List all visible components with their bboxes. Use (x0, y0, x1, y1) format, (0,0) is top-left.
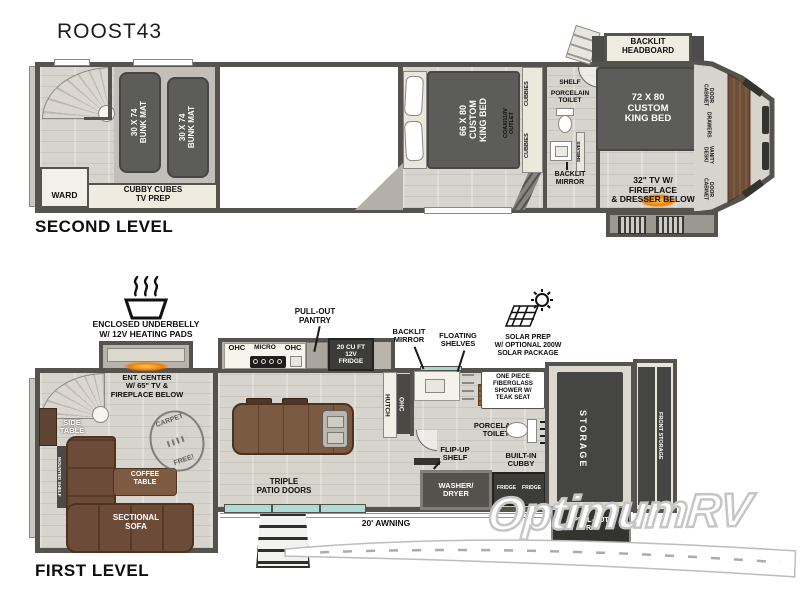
front-storage-label: FRONT STORAGE (657, 372, 671, 500)
leader-line (414, 347, 424, 370)
stair-wall-stub (84, 117, 110, 120)
coax-outlet-label: COAX/110V OUTLET (503, 85, 520, 161)
washer-dryer-label: WASHER/ DRYER (438, 482, 473, 499)
fridge-label: 20 CU FT 12V FRIDGE (337, 344, 365, 366)
ent-center-label: ENT. CENTER W/ 65" TV & FIREPLACE BELOW (98, 374, 196, 399)
front-king-bed: 72 X 80 CUSTOM KING BED (596, 67, 700, 151)
wardrobe-label: WARD (42, 191, 87, 201)
watermark: OptimumRV (486, 482, 753, 542)
bath-vanity (414, 371, 460, 401)
hatch-icon (656, 216, 684, 234)
toilet-bowl-icon (506, 422, 528, 438)
ohc-vertical-label: OHC (397, 376, 410, 432)
cubbies-bottom-label: CUBBIES (524, 122, 540, 170)
backlit-mirror-label-1st: BACKLIT MIRROR (386, 328, 432, 345)
stair-post-icon (92, 406, 109, 423)
bunk-mat-2: 30 X 74 BUNK MAT (167, 77, 209, 178)
bunk-mat-1-label: 30 X 74 BUNK MAT (131, 101, 149, 143)
shelves-label: SHELVES (576, 133, 585, 171)
kitchen-sink-icon (290, 356, 302, 367)
washer-dryer: WASHER/ DRYER (420, 470, 492, 510)
floorplan-page: ROOST43 WARD CUBBY CUBES TV PREP 30 X 74… (0, 0, 800, 600)
window (424, 207, 512, 214)
toilet-bowl-icon (558, 115, 572, 133)
desk-vanity-label: DESK/ VANITY (702, 140, 718, 170)
window (133, 59, 193, 66)
toilet-tank-icon (527, 419, 537, 443)
pillow (404, 76, 424, 117)
front-king-bed-label: 72 X 80 CUSTOM KING BED (625, 93, 671, 125)
cubby-cubes-label: CUBBY CUBES TV PREP (92, 186, 214, 204)
window (54, 59, 90, 66)
sectional-sofa-label: SECTIONAL SOFA (92, 514, 180, 532)
cubbies-top-label: CUBBIES (524, 70, 540, 118)
ohc-right-label: OHC (285, 344, 302, 352)
solar-icon (500, 288, 556, 332)
ohc-left-label: OHC (228, 344, 245, 352)
built-in-cubby-label: BUILT-IN CUBBY (494, 452, 548, 469)
drawers-label: DRAWERS (705, 112, 715, 138)
carpet-free-bottom: FREE! (173, 454, 195, 469)
patio-doors-label: TRIPLE PATIO DOORS (246, 478, 322, 496)
second-level-plan: WARD CUBBY CUBES TV PREP 30 X 74 BUNK MA… (0, 0, 800, 250)
heat-icon (124, 276, 168, 320)
hutch-label: HUTCH (383, 374, 397, 436)
pantry-label: PULL-OUT PANTRY (283, 308, 347, 326)
leader-line (566, 162, 568, 170)
solar-label: SOLAR PREP W/ OPTIONAL 200W SOLAR PACKAG… (482, 334, 574, 357)
pillow (404, 121, 424, 162)
wardrobe (40, 167, 89, 208)
second-level-label: SECOND LEVEL (35, 217, 173, 236)
cabinet-door-label-1: CABINET DOOR (702, 78, 718, 112)
ohc-row: OHC MICRO OHC (224, 344, 306, 352)
storage-label: STORAGE (578, 404, 602, 474)
fireplace-glow-icon (124, 362, 168, 371)
underbelly-label: ENCLOSED UNDERBELLY W/ 12V HEATING PADS (80, 320, 212, 339)
nightstand (592, 36, 604, 62)
stair-wall (108, 62, 112, 120)
fridge: 20 CU FT 12V FRIDGE (328, 338, 374, 371)
mid-king-bed-label: 66 X 80 CUSTOM KING BED (458, 98, 488, 142)
carpet-free-top: CARPET (155, 413, 185, 430)
body-wall-top (218, 62, 402, 67)
stair-landing-wedge (355, 163, 403, 210)
bunk-mat-2-label: 30 X 74 BUNK MAT (179, 106, 197, 148)
micro-label: MICRO (254, 344, 276, 352)
backlit-headboard-label: BACKLIT HEADBOARD (606, 38, 690, 56)
hatch-icon (618, 216, 646, 234)
backlit-mirror-label-2nd: BACKLIT MIRROR (542, 171, 598, 187)
floating-shelves-icon (462, 374, 474, 400)
cooktop-icon (250, 356, 286, 368)
first-level-label: FIRST LEVEL (35, 561, 149, 580)
toilet-label-2nd: PORCELAIN TOILET (545, 90, 595, 105)
floating-shelves-label: FLOATING SHELVES (436, 332, 480, 349)
sink-icon (550, 141, 572, 161)
island-sink-icon (322, 410, 348, 448)
bath-wall-left (543, 62, 547, 213)
pantry (306, 342, 328, 369)
shower-label: ONE PIECE FIBERGLASS SHOWER W/ TEAK SEAT (482, 374, 544, 402)
side-table-label: SIDE TABLE (54, 419, 90, 436)
triple-patio-doors (224, 504, 366, 513)
bunk-mat-1: 30 X 74 BUNK MAT (119, 72, 161, 173)
coffee-table-label: COFFEE TABLE (115, 471, 175, 487)
first-level-plan: ENCLOSED UNDERBELLY W/ 12V HEATING PADS … (0, 250, 800, 600)
tv-fireplace-label: 32" TV W/ FIREPLACE & DRESSER BELOW (598, 176, 708, 205)
